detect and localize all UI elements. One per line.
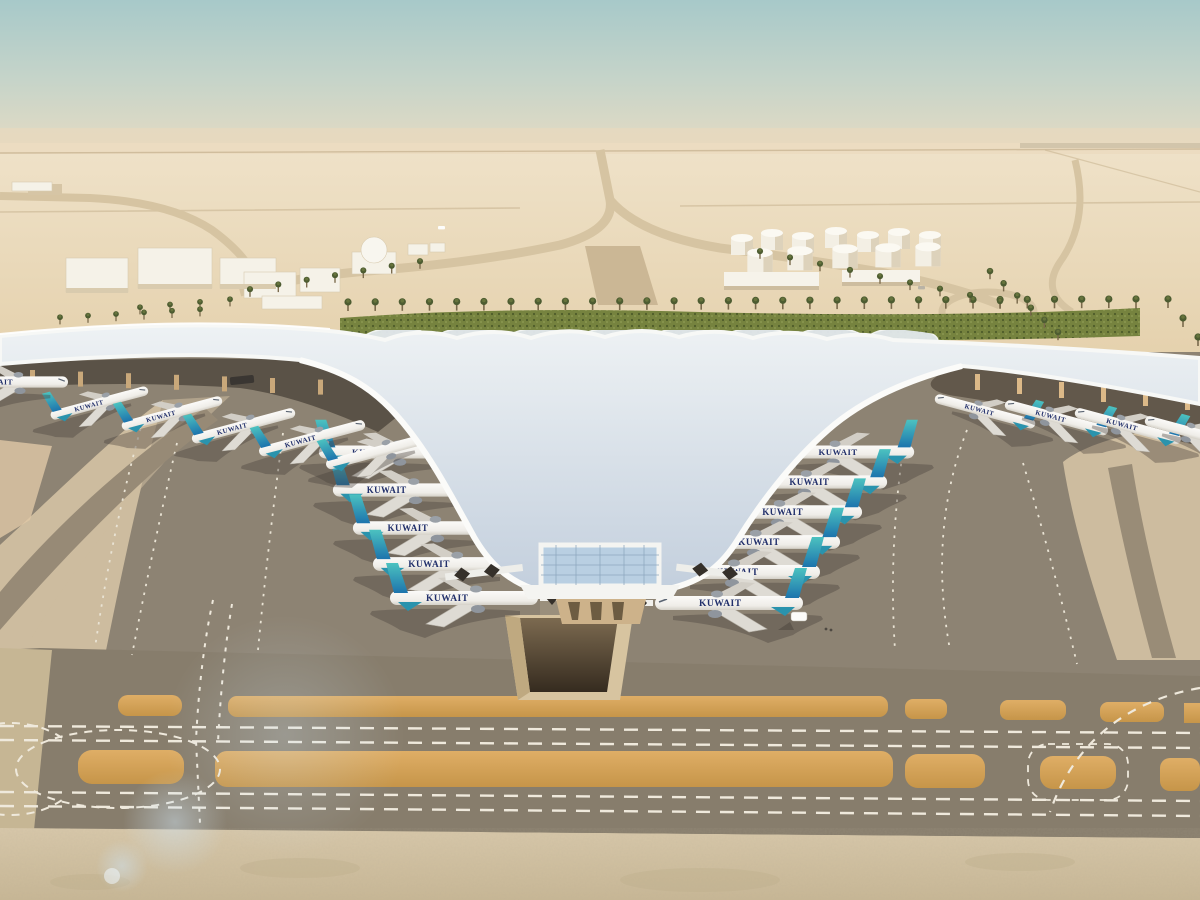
dome-building xyxy=(361,237,387,263)
scene-canvas: KUWAITKUWAITKUWAITKUWAITKUWAITKUWAITKUWA… xyxy=(0,0,1200,900)
canopy-column xyxy=(975,374,980,390)
canopy-column xyxy=(222,376,227,391)
canopy-column xyxy=(318,380,323,395)
airline-title: KUWAIT xyxy=(0,377,13,386)
airline-title: KUWAIT xyxy=(426,594,469,604)
canopy-column xyxy=(270,378,275,393)
airline-title: KUWAIT xyxy=(818,447,857,457)
fuel-tank xyxy=(832,244,857,268)
airline-title: KUWAIT xyxy=(408,560,450,570)
airline-title: KUWAIT xyxy=(699,599,742,609)
canopy-column xyxy=(1101,386,1106,402)
fuel-tank xyxy=(761,229,783,250)
airline-title: KUWAIT xyxy=(387,523,428,533)
airline-title: KUWAIT xyxy=(738,538,780,548)
airport-aerial-rendering: KUWAITKUWAITKUWAITKUWAITKUWAITKUWAITKUWA… xyxy=(0,0,1200,900)
canopy-column xyxy=(1059,382,1064,398)
canopy-column xyxy=(174,375,179,390)
apex-fascia-band xyxy=(520,585,680,599)
canopy-column xyxy=(1017,378,1022,394)
fuel-tank xyxy=(915,242,940,266)
canopy-column xyxy=(78,372,83,387)
airline-title: KUWAIT xyxy=(367,485,407,495)
airline-title: KUWAIT xyxy=(789,477,829,487)
canopy-column xyxy=(126,373,131,388)
airline-title: KUWAIT xyxy=(762,507,803,517)
fuel-tank xyxy=(875,243,900,267)
apex-pier xyxy=(556,599,646,624)
